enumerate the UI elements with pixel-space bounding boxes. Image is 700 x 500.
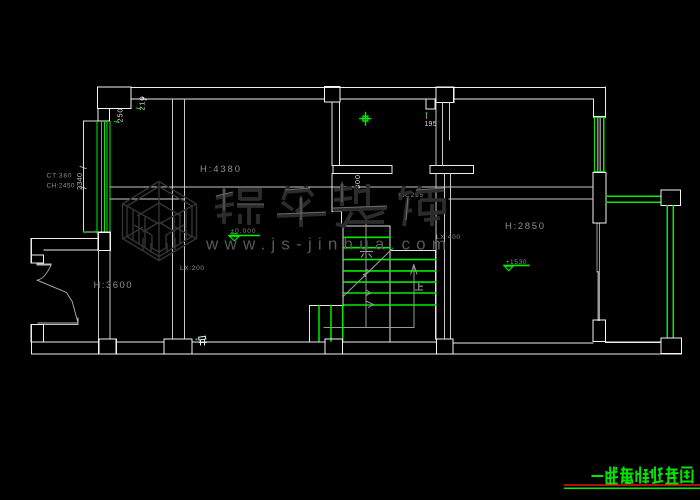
svg-text:195: 195 <box>425 121 437 128</box>
svg-text:LX:200: LX:200 <box>180 265 204 272</box>
svg-text:CH:2450: CH:2450 <box>47 182 75 189</box>
svg-text:H:3600: H:3600 <box>94 280 132 291</box>
svg-text:www.js-jinhua.com: www.js-jinhua.com <box>205 235 452 254</box>
svg-text:H:2850: H:2850 <box>505 221 544 232</box>
svg-text:CT:380: CT:380 <box>47 173 72 180</box>
svg-text:250: 250 <box>116 109 125 123</box>
svg-text:H:4380: H:4380 <box>200 164 240 175</box>
